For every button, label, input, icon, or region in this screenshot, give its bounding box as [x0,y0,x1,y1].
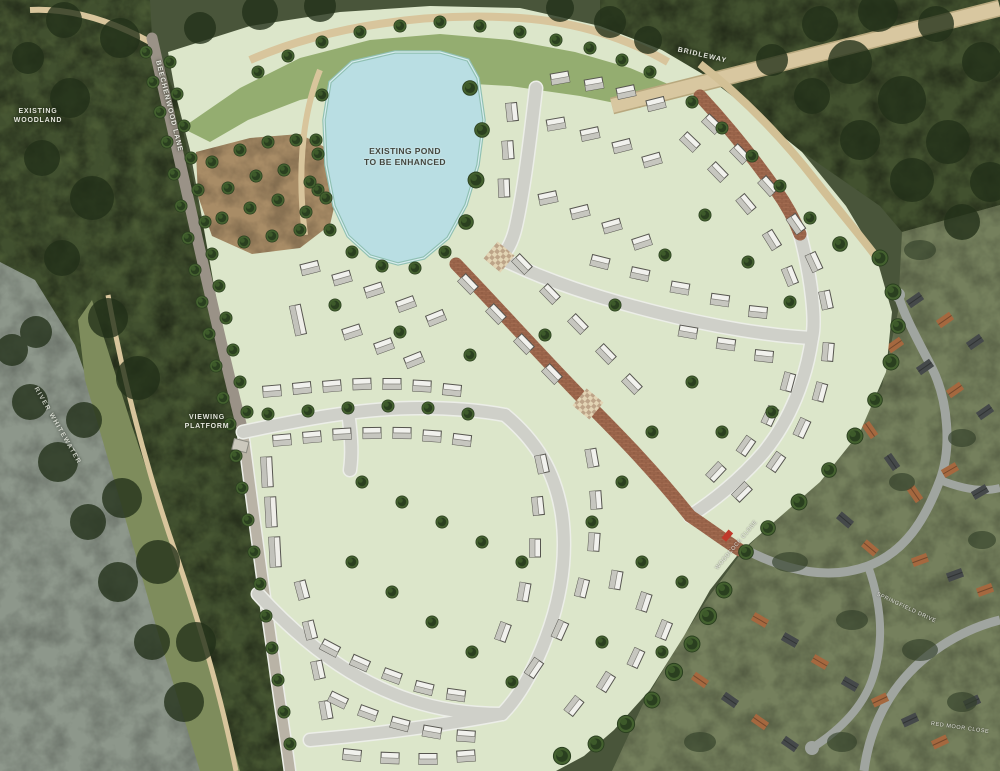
masterplan-map: EXISTING POND TO BE ENHANCED EXISTING WO… [0,0,1000,771]
map-graphics [0,0,1000,771]
